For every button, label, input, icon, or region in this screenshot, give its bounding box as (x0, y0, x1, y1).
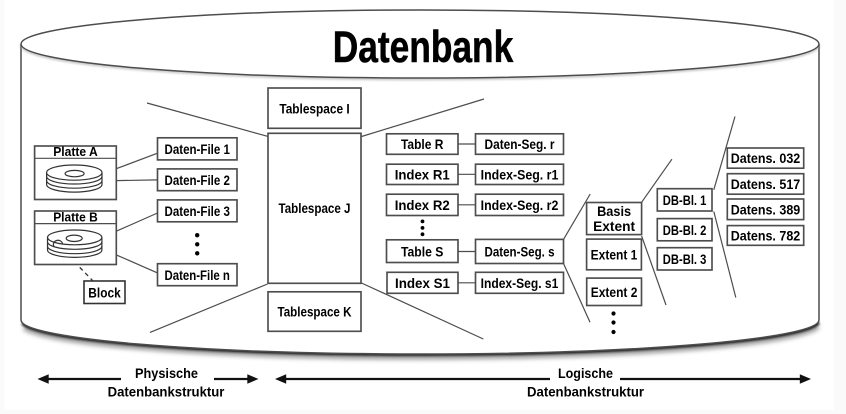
svg-text:Platte B: Platte B (53, 209, 98, 224)
svg-text:Datenbankstruktur: Datenbankstruktur (108, 384, 225, 400)
svg-text:Extent: Extent (593, 218, 635, 234)
svg-text:Index S1: Index S1 (395, 275, 450, 291)
svg-text:Index R2: Index R2 (395, 197, 450, 213)
svg-text:Index-Seg. r1: Index-Seg. r1 (481, 166, 559, 182)
svg-text:Daten-File 1: Daten-File 1 (165, 141, 231, 157)
svg-text:Datens. 782: Datens. 782 (731, 228, 801, 244)
svg-text:Datens. 517: Datens. 517 (731, 176, 801, 192)
svg-text:Daten-File 2: Daten-File 2 (165, 172, 231, 188)
svg-text:DB-Bl. 2: DB-Bl. 2 (663, 222, 707, 238)
svg-text:Index-Seg. s1: Index-Seg. s1 (481, 275, 559, 291)
svg-text:Basis: Basis (597, 203, 631, 219)
svg-text:Extent 2: Extent 2 (591, 284, 638, 300)
svg-text:Logische: Logische (558, 365, 613, 381)
svg-text:Table S: Table S (401, 243, 443, 259)
svg-text:Daten-File n: Daten-File n (165, 267, 230, 283)
svg-text:Extent 1: Extent 1 (591, 247, 638, 263)
svg-text:Datenbank: Datenbank (333, 23, 514, 72)
svg-text:Platte A: Platte A (53, 144, 98, 159)
svg-text:Daten-Seg. r: Daten-Seg. r (485, 136, 555, 152)
svg-text:Table R: Table R (401, 136, 443, 152)
svg-text:Datenbankstruktur: Datenbankstruktur (527, 384, 645, 400)
svg-text:Daten-File 3: Daten-File 3 (165, 203, 231, 219)
svg-text:Tablespace I: Tablespace I (279, 100, 349, 116)
svg-text:Tablespace K: Tablespace K (278, 304, 352, 320)
svg-text:Physische: Physische (135, 365, 198, 381)
svg-text:DB-Bl. 3: DB-Bl. 3 (663, 251, 707, 267)
svg-text:Block: Block (88, 284, 121, 300)
svg-text:Index-Seg. r2: Index-Seg. r2 (481, 197, 559, 213)
svg-text:Tablespace J: Tablespace J (279, 200, 351, 216)
svg-text:Datens. 389: Datens. 389 (731, 201, 801, 217)
svg-text:Daten-Seg. s: Daten-Seg. s (485, 244, 555, 260)
svg-text:Datens. 032: Datens. 032 (731, 150, 801, 166)
svg-text:DB-Bl. 1: DB-Bl. 1 (663, 192, 707, 208)
svg-text:Index R1: Index R1 (395, 166, 450, 182)
